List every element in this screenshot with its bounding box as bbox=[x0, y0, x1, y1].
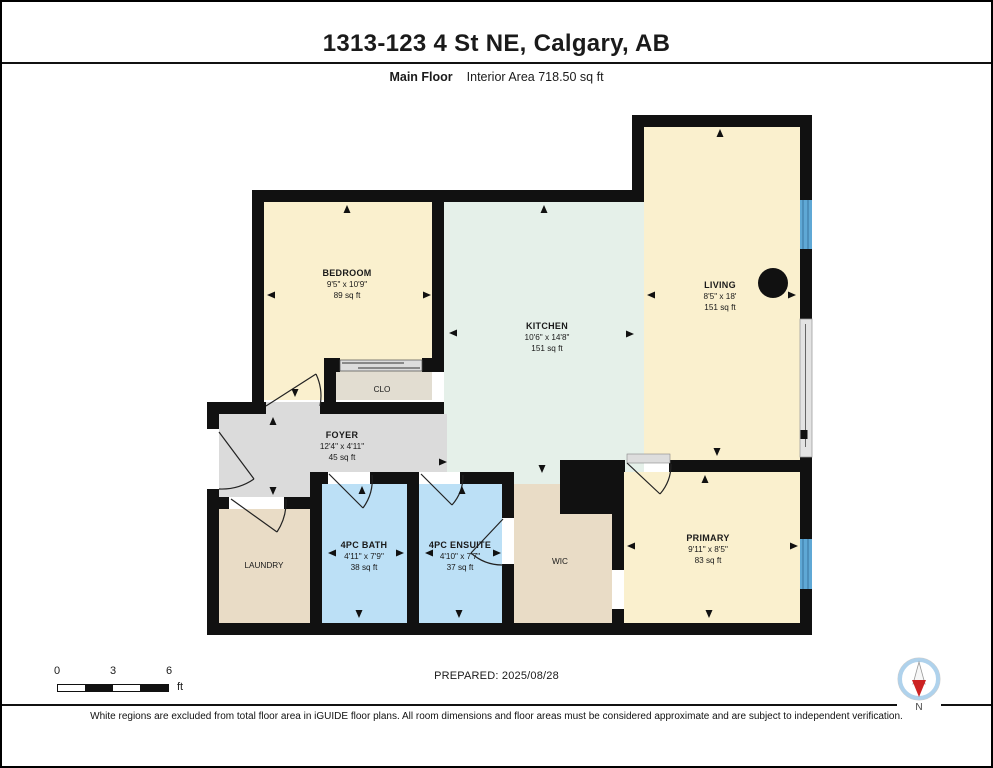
bath-area: 38 sq ft bbox=[351, 563, 379, 572]
floorplan-drawing: BEDROOM 9'5" x 10'9" 89 sq ft KITCHEN 10… bbox=[2, 2, 993, 768]
living-window bbox=[800, 200, 812, 249]
compass-label: N bbox=[897, 702, 941, 713]
foyer-area: 45 sq ft bbox=[329, 453, 357, 462]
kitchen-area: 151 sq ft bbox=[531, 344, 563, 353]
prepared-date: PREPARED: 2025/08/28 bbox=[2, 670, 991, 682]
patio-door bbox=[800, 319, 812, 457]
living-area: 151 sq ft bbox=[704, 303, 736, 312]
kitchen-dims: 10'6" x 14'8" bbox=[525, 333, 570, 342]
floorplan-page: 1313-123 4 St NE, Calgary, AB Main Floor… bbox=[0, 0, 993, 768]
wic-label: WIC bbox=[552, 557, 568, 566]
living-label: LIVING bbox=[704, 280, 736, 290]
ensuite-area: 37 sq ft bbox=[447, 563, 475, 572]
foyer-label: FOYER bbox=[326, 430, 359, 440]
footer-divider bbox=[2, 704, 991, 706]
living-dims: 8'5" x 18' bbox=[704, 292, 737, 301]
bedroom-label: BEDROOM bbox=[322, 268, 371, 278]
laundry-label: LAUNDRY bbox=[245, 561, 285, 570]
ensuite-dims: 4'10" x 7'7" bbox=[440, 552, 480, 561]
closet-slider bbox=[340, 360, 422, 371]
bedroom-area: 89 sq ft bbox=[334, 291, 362, 300]
compass-icon bbox=[897, 657, 941, 701]
column-marker bbox=[758, 268, 788, 298]
disclaimer-text: White regions are excluded from total fl… bbox=[2, 711, 991, 722]
kitchen-label: KITCHEN bbox=[526, 321, 568, 331]
primary-area: 83 sq ft bbox=[695, 556, 723, 565]
closet-label: CLO bbox=[374, 385, 391, 394]
wic-passage bbox=[514, 460, 560, 484]
bath-label: 4PC BATH bbox=[341, 540, 388, 550]
compass: N bbox=[897, 657, 941, 717]
ensuite-label: 4PC ENSUITE bbox=[429, 540, 491, 550]
bedroom-door-opening bbox=[266, 402, 320, 414]
bedroom-dims: 9'5" x 10'9" bbox=[327, 280, 367, 289]
scale-bar-segments bbox=[57, 684, 169, 692]
bath-dims: 4'11" x 7'9" bbox=[344, 552, 384, 561]
primary-dims: 9'11" x 8'5" bbox=[688, 545, 728, 554]
primary-door-lintel bbox=[627, 454, 670, 463]
foyer-dims: 12'4" x 4'11" bbox=[320, 442, 364, 451]
primary-label: PRIMARY bbox=[686, 533, 729, 543]
primary-window bbox=[800, 539, 812, 589]
scale-unit: ft bbox=[177, 681, 183, 693]
